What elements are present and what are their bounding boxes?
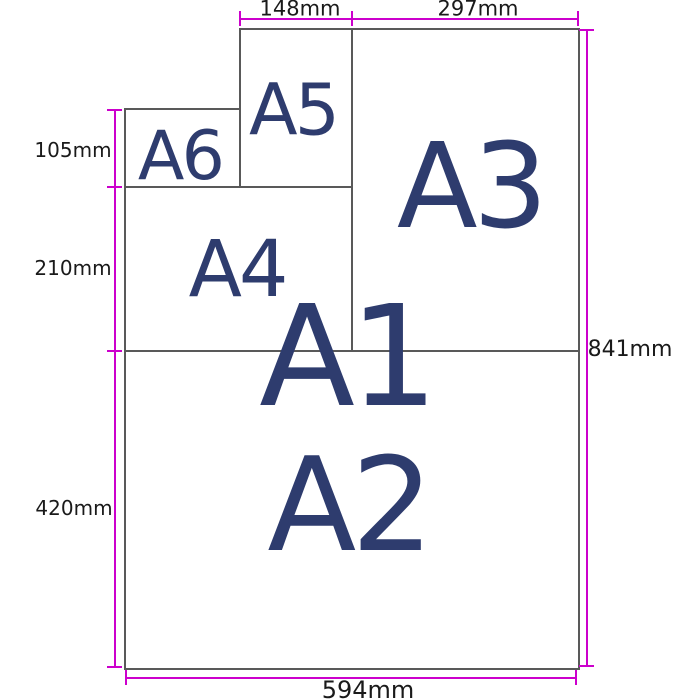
paper-size-diagram: A1 A2 A3 A4 A5 A6 148mm 297mm 105mm 210m…	[0, 0, 700, 700]
a4-height-dimension: 210mm	[34, 258, 111, 278]
dimension-tick	[579, 665, 594, 667]
a5-left-edge	[239, 28, 241, 188]
a6-height-dimension: 105mm	[34, 140, 111, 160]
sheet-right-edge	[578, 28, 580, 670]
a3-label: A3	[397, 127, 543, 245]
dimension-tick	[125, 670, 127, 685]
a2-label: A2	[267, 440, 428, 570]
dimension-tick	[107, 350, 122, 352]
a1-height-dimension: 841mm	[588, 339, 673, 361]
dimension-tick	[107, 186, 122, 188]
dimension-tick	[579, 29, 594, 31]
dimension-tick	[239, 11, 241, 26]
a5-label: A5	[249, 75, 337, 146]
dimension-tick	[577, 11, 579, 26]
dimension-tick	[107, 109, 122, 111]
dimension-tick	[351, 11, 353, 26]
a5-width-dimension: 148mm	[260, 0, 341, 20]
a6-label: A6	[138, 123, 222, 191]
a6-top-edge	[124, 108, 241, 110]
a3-width-dimension: 297mm	[438, 0, 519, 20]
left-dimension-line	[114, 110, 116, 668]
a2-height-dimension: 420mm	[35, 498, 112, 518]
a5-a3-top-edge	[239, 28, 580, 30]
sheet-bottom-edge	[124, 668, 580, 670]
dimension-tick	[575, 670, 577, 685]
sheet-left-edge	[124, 108, 126, 670]
a1-width-dimension: 594mm	[322, 678, 415, 700]
a4-label: A4	[189, 231, 286, 309]
dimension-tick	[107, 666, 122, 668]
